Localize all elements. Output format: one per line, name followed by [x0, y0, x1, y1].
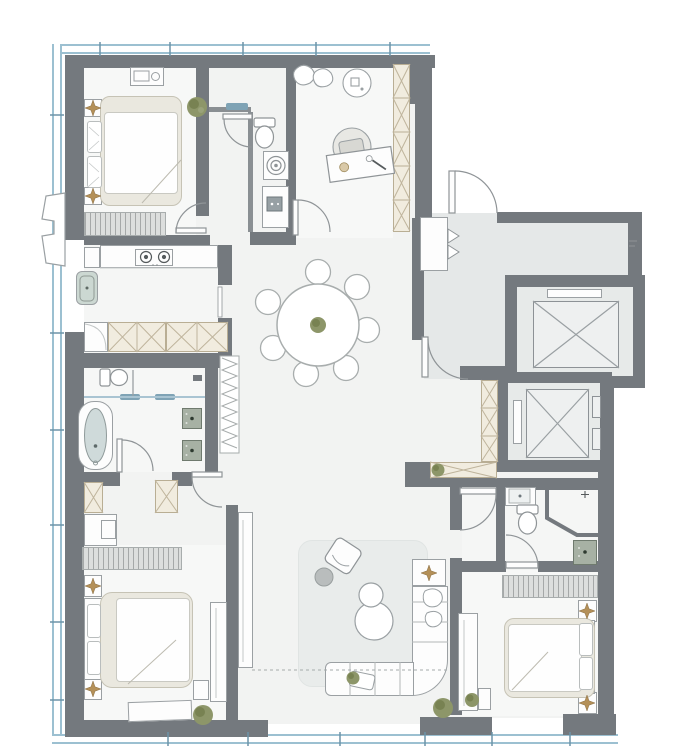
bed-sheet — [104, 112, 178, 194]
bed-sheet — [508, 624, 582, 692]
tv-console — [458, 613, 478, 711]
bedroom-1-wardrobe — [84, 212, 166, 236]
pillow — [87, 121, 102, 153]
glass-door-handle — [120, 394, 140, 400]
utility-counter — [262, 186, 289, 228]
nightstand — [84, 678, 102, 700]
kitchen-fridge — [84, 247, 100, 268]
pillow — [87, 604, 101, 638]
wall — [65, 332, 84, 737]
bed-sheet — [116, 598, 190, 682]
sofa-side-table — [412, 559, 446, 586]
foot-bench — [128, 700, 193, 722]
side-table — [478, 688, 491, 710]
elevator-1-door — [547, 289, 602, 298]
elevator-2-door — [513, 400, 522, 444]
bedroom-right-dresser — [502, 575, 598, 598]
wall — [196, 68, 209, 216]
vanity-sink — [182, 408, 202, 429]
pillow — [87, 641, 101, 675]
elevator-2-side-panel — [592, 396, 601, 418]
wall — [405, 462, 430, 487]
wall — [420, 717, 492, 735]
tv-dresser — [130, 67, 164, 86]
wall — [450, 487, 462, 530]
wall — [430, 478, 498, 487]
wall — [496, 490, 505, 562]
wall — [65, 720, 268, 737]
master-bedroom-dresser — [82, 547, 182, 570]
elevator-2-side-panel — [592, 428, 601, 450]
corner-cabinet — [84, 322, 108, 352]
floor-study — [296, 68, 393, 238]
wall — [65, 353, 232, 368]
glass-door-handle — [155, 394, 175, 400]
sink-cabinet — [505, 487, 536, 506]
wall — [84, 235, 210, 245]
kitchen-base-cabinet — [166, 322, 228, 352]
washing-machine — [263, 151, 289, 180]
wall-shelf — [226, 103, 248, 110]
pillow — [579, 623, 593, 656]
window-band-top — [62, 44, 430, 54]
kitchen-base-cabinet — [108, 322, 166, 352]
wall — [65, 55, 84, 240]
window-band-left — [52, 44, 62, 744]
wall — [205, 368, 218, 472]
sofa-section-bottom — [325, 662, 414, 696]
nightstand — [84, 575, 102, 597]
floor-plan — [0, 0, 700, 756]
pillow — [579, 657, 593, 690]
dressing-wardrobe — [84, 482, 103, 513]
vanity-sink — [573, 540, 597, 565]
hall-wardrobe — [481, 380, 498, 462]
pillow — [87, 156, 102, 188]
kitchen-sink — [76, 271, 98, 305]
vanity-sink — [182, 440, 202, 461]
bathtub — [78, 401, 113, 470]
wall — [248, 112, 253, 232]
wall — [218, 245, 232, 285]
hall-cabinet — [430, 462, 497, 478]
entry-door — [449, 171, 497, 213]
shoe-cabinet — [420, 217, 448, 271]
wall — [497, 212, 638, 223]
vanity-stool — [101, 520, 116, 539]
wall — [65, 55, 435, 68]
wall — [462, 561, 506, 572]
elevator-2-car — [526, 389, 589, 458]
cooktop — [135, 249, 173, 266]
dressing-wardrobe — [155, 480, 178, 513]
tv-console — [210, 602, 227, 702]
side-table — [193, 680, 209, 700]
wall — [250, 232, 296, 245]
study-wardrobe — [393, 64, 410, 232]
elevator-1-car — [533, 301, 619, 368]
tv-bench — [238, 512, 253, 668]
wall — [226, 505, 238, 720]
